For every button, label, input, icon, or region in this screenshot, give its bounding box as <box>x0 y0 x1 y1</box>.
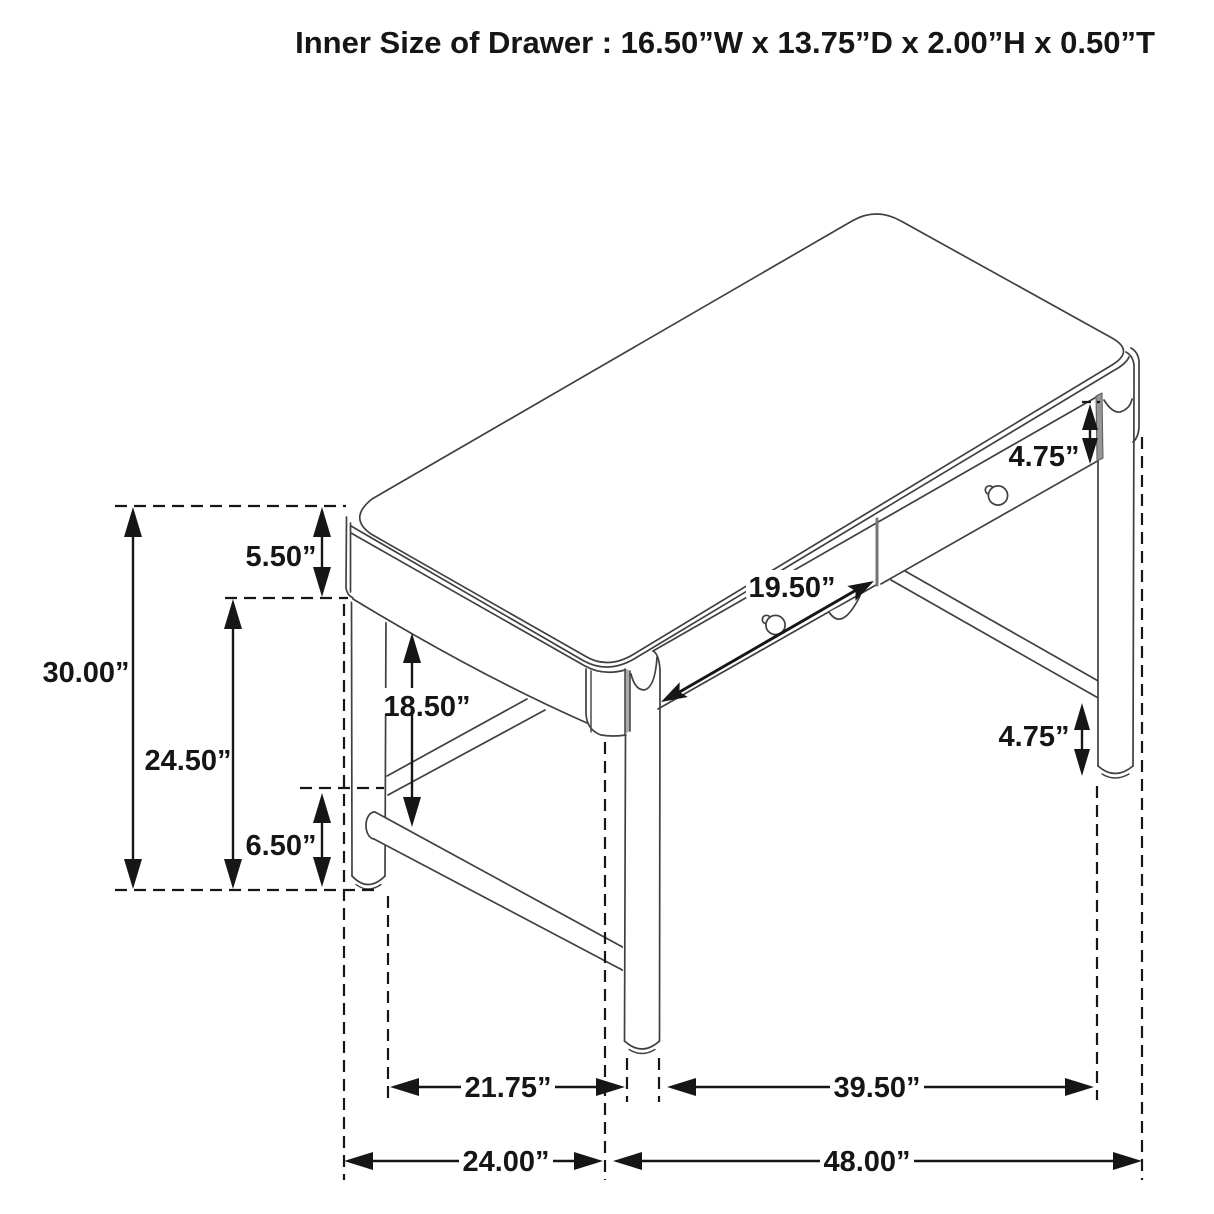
svg-text:18.50”: 18.50” <box>383 691 470 723</box>
svg-text:21.75”: 21.75” <box>464 1072 551 1104</box>
svg-text:6.50”: 6.50” <box>246 830 317 862</box>
svg-text:5.50”: 5.50” <box>246 541 317 573</box>
svg-text:19.50”: 19.50” <box>748 572 835 604</box>
svg-text:4.75”: 4.75” <box>999 721 1070 753</box>
svg-text:30.00”: 30.00” <box>42 657 129 689</box>
svg-text:48.00”: 48.00” <box>823 1146 910 1178</box>
svg-text:24.50”: 24.50” <box>144 745 231 777</box>
svg-text:39.50”: 39.50” <box>833 1072 920 1104</box>
svg-text:4.75”: 4.75” <box>1009 441 1080 473</box>
svg-text:Inner Size of Drawer : 16.50”W: Inner Size of Drawer : 16.50”W x 13.75”D… <box>295 25 1155 60</box>
svg-text:24.00”: 24.00” <box>462 1146 549 1178</box>
